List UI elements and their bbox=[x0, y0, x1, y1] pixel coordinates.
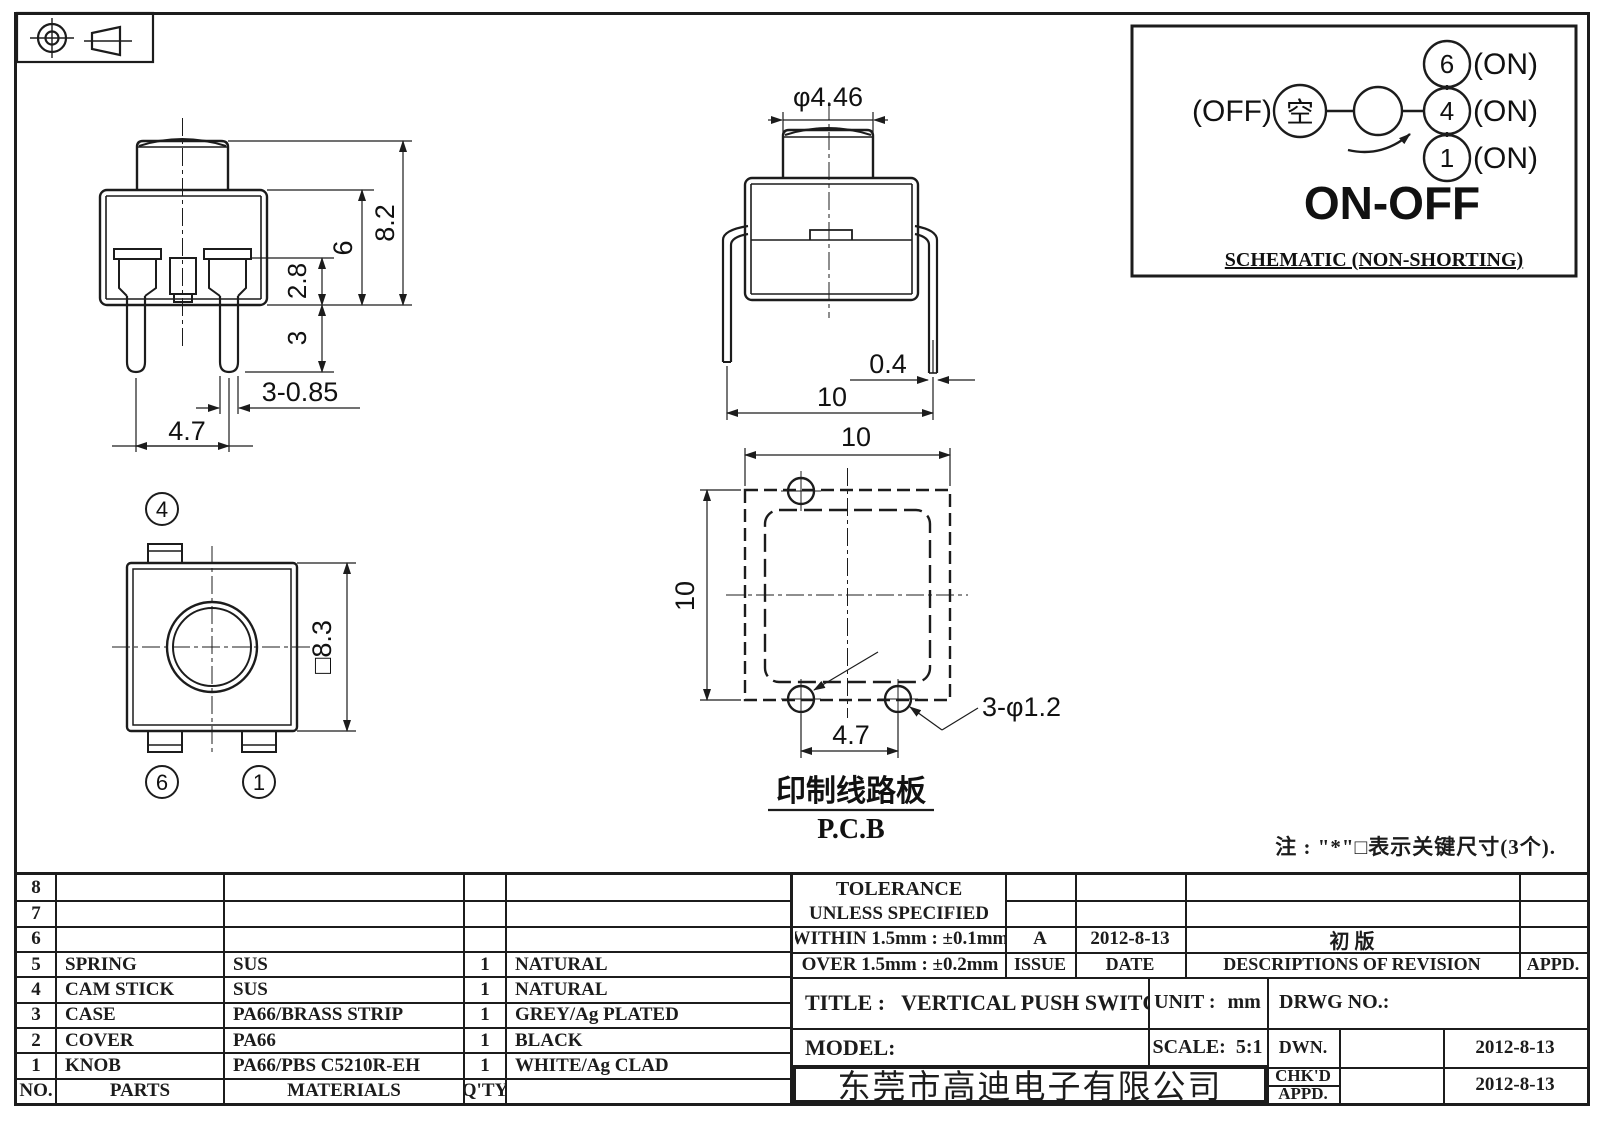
parts-header-no: NO. bbox=[17, 1078, 57, 1103]
part-material-cell: PA66/PBS C5210R-EH bbox=[225, 1052, 465, 1077]
dim-pcb-hole-pitch: 4.7 bbox=[832, 720, 870, 750]
tolerance-subtitle: UNLESS SPECIFIED bbox=[793, 902, 1005, 926]
chkd-date: 2012-8-13 bbox=[1443, 1067, 1587, 1103]
unit-value: mm bbox=[1227, 991, 1260, 1014]
dim-side-wire-dia: 0.4 bbox=[869, 349, 907, 379]
drawing-area: 8.2 6 2.8 3 3-0.85 4.7 bbox=[0, 0, 1600, 872]
part-name-cell: COVER bbox=[57, 1027, 225, 1052]
part-qty-cell: 1 bbox=[465, 976, 507, 1001]
key-dimension-note: 注 : "*"□表示关键尺寸(3个). bbox=[1275, 831, 1556, 861]
part-finish-cell: NATURAL bbox=[507, 976, 790, 1001]
part-qty-cell: 1 bbox=[465, 1052, 507, 1077]
dwn-label: DWN. bbox=[1267, 1028, 1339, 1067]
title-label: TITLE : bbox=[805, 990, 885, 1016]
parts-header-materials: MATERIALS bbox=[225, 1078, 465, 1103]
appd-row-label: APPD. bbox=[1267, 1085, 1339, 1103]
chkd-label: CHK'D bbox=[1267, 1067, 1339, 1085]
terminal-1-label: 1 bbox=[253, 770, 265, 795]
title-value: VERTICAL PUSH SWITCH bbox=[901, 990, 1148, 1016]
part-finish-cell: GREY/Ag PLATED bbox=[507, 1002, 790, 1027]
part-name-cell: CAM STICK bbox=[57, 976, 225, 1001]
date-label: DATE bbox=[1075, 952, 1185, 977]
dim-pcb-width: 10 bbox=[841, 422, 871, 452]
parts-table: 8 7 6 5 SPRING SUS 1 NATURAL 4 CAM STICK… bbox=[14, 872, 790, 1106]
unit-row: UNIT : mm bbox=[1148, 977, 1267, 1028]
title-block: TOLERANCE UNLESS SPECIFIED WITHIN 1.5mm … bbox=[790, 872, 1590, 1106]
part-name-cell: KNOB bbox=[57, 1052, 225, 1077]
part-material-cell: SUS bbox=[225, 951, 465, 976]
part-finish-cell bbox=[507, 900, 790, 925]
appd-label: APPD. bbox=[1519, 952, 1587, 977]
terminal-6-label: 6 bbox=[156, 770, 168, 795]
dim-front-leg-length: 3 bbox=[282, 331, 312, 345]
schematic-common-terminal: 空 bbox=[1286, 97, 1314, 128]
part-no-cell: 4 bbox=[17, 976, 57, 1001]
part-qty-cell bbox=[465, 875, 507, 900]
part-finish-cell: NATURAL bbox=[507, 951, 790, 976]
part-name-cell: SPRING bbox=[57, 951, 225, 976]
dim-side-lead-span: 10 bbox=[817, 382, 847, 412]
dim-side-knob-dia: φ4.46 bbox=[793, 82, 863, 112]
issue-value: A bbox=[1005, 926, 1075, 952]
schematic-terminal-1: 1 bbox=[1440, 143, 1454, 173]
part-no-cell: 3 bbox=[17, 1002, 57, 1027]
schematic-function-label: ON-OFF bbox=[1304, 177, 1480, 229]
scale-label: SCALE: bbox=[1152, 1036, 1225, 1059]
top-view bbox=[112, 493, 313, 798]
part-no-cell: 5 bbox=[17, 951, 57, 976]
part-name-cell bbox=[57, 926, 225, 951]
part-name-cell bbox=[57, 875, 225, 900]
pcb-view bbox=[726, 468, 968, 719]
dim-front-terminal-height: 2.8 bbox=[282, 263, 312, 299]
part-finish-cell: WHITE/Ag CLAD bbox=[507, 1052, 790, 1077]
part-qty-cell: 1 bbox=[465, 1027, 507, 1052]
part-material-cell bbox=[225, 875, 465, 900]
parts-header-finish bbox=[507, 1078, 790, 1103]
tolerance-within: WITHIN 1.5mm : ±0.1mm bbox=[795, 926, 1005, 952]
schematic-terminal-6: 6 bbox=[1440, 49, 1454, 79]
schematic-terminal-1-state: (ON) bbox=[1473, 142, 1538, 175]
issue-label: ISSUE bbox=[1005, 952, 1075, 977]
dim-top-body-size: □8.3 bbox=[307, 620, 337, 674]
divider bbox=[1005, 900, 1587, 902]
part-finish-cell bbox=[507, 875, 790, 900]
title-row: TITLE : VERTICAL PUSH SWITCH bbox=[805, 977, 1148, 1028]
schematic-terminal-4: 4 bbox=[1440, 96, 1454, 126]
projection-symbol-icon bbox=[17, 13, 153, 62]
dim-front-body-height: 6 bbox=[328, 240, 358, 255]
dim-front-total-height: 8.2 bbox=[370, 204, 400, 242]
side-view bbox=[723, 102, 937, 373]
front-view bbox=[100, 118, 267, 372]
part-material-cell: SUS bbox=[225, 976, 465, 1001]
part-no-cell: 2 bbox=[17, 1027, 57, 1052]
part-no-cell: 1 bbox=[17, 1052, 57, 1077]
part-material-cell bbox=[225, 926, 465, 951]
tolerance-over: OVER 1.5mm : ±0.2mm bbox=[795, 952, 1005, 977]
parts-header-parts: PARTS bbox=[57, 1078, 225, 1103]
pcb-label-cn: 印制线路板 bbox=[776, 775, 926, 808]
part-qty-cell bbox=[465, 926, 507, 951]
pcb-view-dimensions bbox=[700, 448, 978, 810]
dim-front-leg-width: 3-0.85 bbox=[262, 377, 339, 407]
revision-value: 初 版 bbox=[1185, 926, 1519, 952]
part-name-cell: CASE bbox=[57, 1002, 225, 1027]
part-no-cell: 8 bbox=[17, 875, 57, 900]
part-material-cell bbox=[225, 900, 465, 925]
schematic-caption: SCHEMATIC (NON-SHORTING) bbox=[1225, 249, 1523, 271]
dwn-date: 2012-8-13 bbox=[1443, 1028, 1587, 1067]
divider bbox=[1339, 1028, 1341, 1103]
schematic-off-label: (OFF) bbox=[1192, 95, 1272, 128]
unit-label: UNIT : bbox=[1154, 991, 1215, 1014]
schematic-terminal-4-state: (ON) bbox=[1473, 95, 1538, 128]
issue-date-value: 2012-8-13 bbox=[1075, 926, 1185, 952]
revision-label: DESCRIPTIONS OF REVISION bbox=[1185, 952, 1519, 977]
part-no-cell: 7 bbox=[17, 900, 57, 925]
terminal-4-label: 4 bbox=[156, 497, 168, 522]
schematic-terminal-6-state: (ON) bbox=[1473, 48, 1538, 81]
company-name: 东莞市高迪电子有限公司 bbox=[793, 1065, 1267, 1103]
part-material-cell: PA66 bbox=[225, 1027, 465, 1052]
part-material-cell: PA66/BRASS STRIP bbox=[225, 1002, 465, 1027]
scale-value: 5:1 bbox=[1236, 1036, 1263, 1059]
part-name-cell bbox=[57, 900, 225, 925]
parts-header-qty: Q'TY bbox=[465, 1078, 507, 1103]
drawing-sheet: 8.2 6 2.8 3 3-0.85 4.7 bbox=[0, 0, 1600, 1131]
part-qty-cell bbox=[465, 900, 507, 925]
dim-pcb-holes: 3-φ1.2 bbox=[982, 692, 1061, 722]
pcb-label-en: P.C.B bbox=[817, 814, 884, 845]
part-finish-cell: BLACK bbox=[507, 1027, 790, 1052]
tolerance-title: TOLERANCE bbox=[793, 877, 1005, 901]
dim-front-leg-pitch: 4.7 bbox=[168, 416, 206, 446]
drwg-no-label: DRWG NO.: bbox=[1279, 977, 1579, 1028]
part-finish-cell bbox=[507, 926, 790, 951]
dim-pcb-height: 10 bbox=[670, 581, 700, 611]
part-qty-cell: 1 bbox=[465, 951, 507, 976]
part-no-cell: 6 bbox=[17, 926, 57, 951]
part-qty-cell: 1 bbox=[465, 1002, 507, 1027]
